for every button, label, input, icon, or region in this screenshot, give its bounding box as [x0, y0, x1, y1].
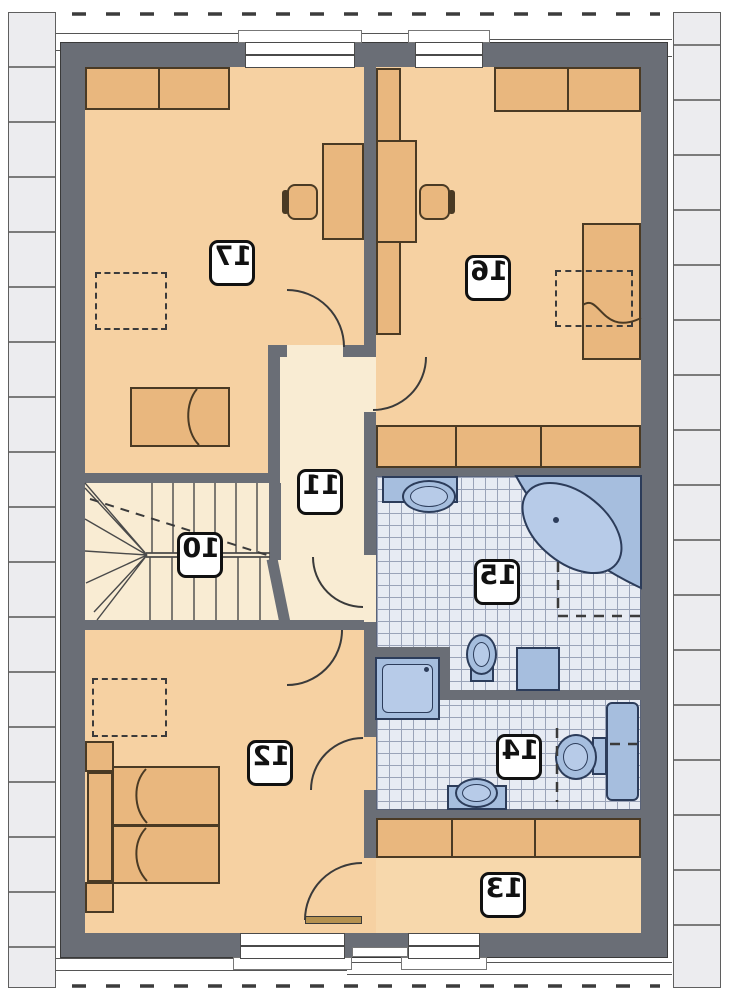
- room-label-12: 12: [247, 740, 293, 786]
- wall-hall-bath15: [364, 412, 376, 555]
- window-room17: [245, 42, 355, 68]
- washbasin-inner-bath14: [462, 784, 491, 802]
- balcony-door-leaf: [305, 916, 362, 924]
- wardrobe-room13: [376, 818, 641, 858]
- headboard-room12: [87, 772, 113, 882]
- double-bed-room12: [112, 766, 220, 884]
- wall-hall-room12-stub: [343, 620, 364, 630]
- door-opening-bath14: [364, 737, 376, 790]
- room-label-16: 16: [465, 255, 511, 301]
- staircase-exit-floor: [269, 560, 281, 620]
- nightstand-room12-b: [85, 882, 114, 913]
- chair-room16: [419, 184, 450, 220]
- desk-room17: [322, 143, 364, 240]
- floor-plan: 17 16 11 10 15 12 14 13: [0, 0, 729, 1000]
- shower-bath14: [375, 657, 440, 720]
- door-opening-room16: [364, 357, 376, 412]
- wall-bath14-room13: [364, 810, 641, 818]
- tub-bath14: [606, 702, 639, 801]
- door-opening-room17: [287, 345, 343, 357]
- wall-room12-room13: [364, 790, 376, 858]
- window-room12: [240, 933, 345, 959]
- room-label-15: 15: [474, 559, 520, 605]
- window-room16: [415, 42, 483, 68]
- eaves-band-bottom-right: [347, 962, 672, 975]
- passage-room12-room13: [364, 858, 376, 933]
- toilet-inner-bath14: [563, 743, 588, 771]
- room-label-17: 17: [209, 240, 255, 286]
- skylight-room12: [92, 678, 167, 737]
- hall-top-wall-right: [343, 345, 364, 357]
- chair-back-room17: [282, 190, 289, 214]
- washbasin-inner-bath15: [410, 486, 448, 507]
- skylight-room17: [95, 272, 167, 330]
- nightstand-room12-a: [85, 741, 114, 772]
- window-room13: [408, 933, 480, 959]
- wall-stairs-room12: [85, 620, 287, 630]
- wardrobe-room16: [494, 67, 641, 112]
- wall-bath15-bath14-c: [439, 690, 641, 700]
- wardrobe-room16-bottom: [376, 425, 641, 468]
- balcony-door-sill: [352, 947, 408, 957]
- roof-tiles-left: [8, 12, 56, 988]
- wall-room17-stairs: [85, 473, 280, 483]
- roof-tiles-right: [673, 12, 721, 988]
- washing-machine-bath15: [516, 647, 560, 691]
- bed-room17: [130, 387, 230, 447]
- wardrobe-room17: [85, 67, 230, 110]
- wall-bath15-bath14-a: [364, 647, 447, 657]
- chair-back-room16: [448, 190, 455, 214]
- skylight-room16: [555, 270, 633, 327]
- room-label-10: 10: [177, 532, 223, 578]
- hall-left-wall: [268, 345, 280, 483]
- room-label-13: 13: [480, 872, 526, 918]
- door-opening-bath15: [364, 555, 376, 622]
- room-label-14: 14: [496, 734, 542, 780]
- wall-between-17-16: [364, 67, 376, 357]
- stair-railing-wall: [269, 483, 281, 560]
- desk-room16: [376, 140, 417, 243]
- room-label-11: 11: [297, 469, 343, 515]
- chair-room17: [287, 184, 318, 220]
- wall-room16-bath15: [364, 468, 641, 476]
- toilet-inner-bath15: [473, 642, 490, 667]
